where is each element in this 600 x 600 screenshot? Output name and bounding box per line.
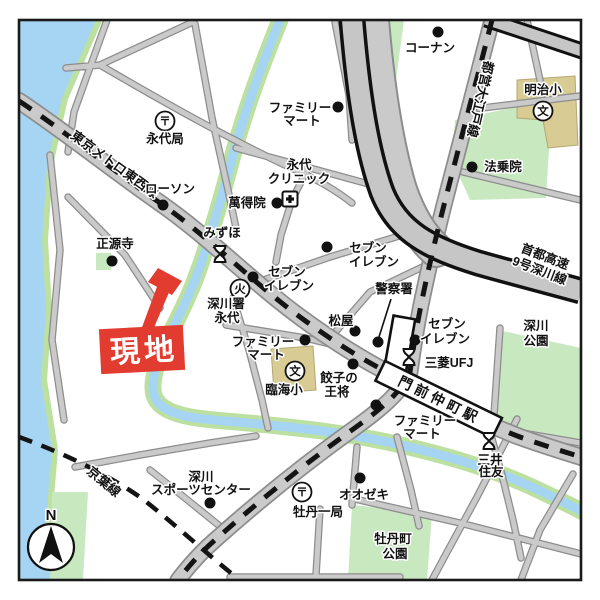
label-eitai-clinic-2: クリニック [268,172,331,186]
label-kohnan: コーナン [405,41,455,55]
label-matsuya: 松屋 [328,313,354,328]
label-hojoin: 法乗院 [484,159,522,174]
site-label: 現地 [109,333,179,370]
seven-a-dot [322,242,333,253]
school-icon: 文 [286,362,305,381]
kohnan-dot [433,27,444,38]
shogenji-dot [107,256,118,267]
label-gyoza-2: 王将 [324,384,350,399]
school-icon: 文 [534,102,553,121]
compass-north-label: N [46,507,57,524]
post-office-icon: 〒 [156,112,175,131]
label-sports-1: 深川 [188,469,213,484]
label-mizuho: みずほ [203,225,241,240]
label-eitai-clinic-1: 永代 [285,157,312,172]
label-famima-mid-2: マート [247,348,285,362]
label-mantokuin: 萬得院 [228,195,266,210]
label-lawson: ローソン [145,182,195,196]
gyoza-dot [348,359,359,370]
location-map: 門前仲町駅 〒 [0,0,600,600]
label-smbc-2: 住友 [478,464,504,479]
label-famima-st-1: ファミリー [394,414,457,428]
svg-text:〒: 〒 [296,486,308,499]
label-meiji-elem: 明治小 [524,82,562,97]
label-ufj: 三菱UFJ [425,355,474,370]
label-fire-eitai-1: 深川署 [207,296,245,311]
label-seven-b-1: セブン [268,264,306,279]
label-seven-a-1: セブン [349,240,387,255]
label-botancho-park-1: 牡丹町 [374,531,412,546]
post-office-icon: 〒 [293,483,312,502]
label-famima-top-2: マート [283,114,321,128]
map-canvas: 門前仲町駅 〒 [0,0,600,600]
svg-text:〒: 〒 [159,115,171,128]
svg-text:文: 文 [289,364,301,378]
famima-mid-dot [300,335,311,346]
hojoin-dot [467,162,478,173]
seven-b-dot [248,272,259,283]
police-dot [373,337,384,348]
svg-text:文: 文 [537,104,549,118]
label-fire-eitai-2: 永代 [213,310,240,325]
label-famima-st-2: マート [403,427,441,441]
mantokuin-dot [272,198,283,209]
label-gyoza-1: 餃子の [319,370,358,385]
label-botancho-park-2: 公園 [382,547,407,561]
sports-dot [205,498,216,509]
ozeki-dot [355,473,366,484]
svg-text:火: 火 [234,283,246,296]
famima-st-dot [371,400,382,411]
label-sports-2: スポーツセンター [151,482,251,497]
hospital-icon [283,192,298,207]
label-rinkai-elem: 臨海小 [265,382,303,397]
label-shogenji: 正源寺 [96,236,134,251]
label-police: 警察署 [374,281,413,296]
lawson-dot [158,200,169,211]
label-eitai-post: 永代局 [145,131,184,146]
label-botan-post: 牡丹一局 [293,504,343,519]
label-fukagawa-park-2: 公園 [523,334,548,348]
label-seven-c-2: イレブン [420,331,470,346]
site-label-box: 現地 [99,325,185,374]
famima-top-dot [333,102,344,113]
label-fukagawa-park-1: 深川 [523,318,548,333]
label-seven-b-2: イレブン [264,278,314,293]
label-famima-mid-1: ファミリー [232,335,295,349]
seven-c-dot [410,335,421,346]
label-seven-a-2: イレブン [349,254,399,269]
fire-station-icon: 火 [231,280,250,299]
label-famima-top-1: ファミリー [269,101,332,115]
label-seven-c-1: セブン [428,316,466,331]
label-ozeki: オオゼキ [339,487,389,502]
